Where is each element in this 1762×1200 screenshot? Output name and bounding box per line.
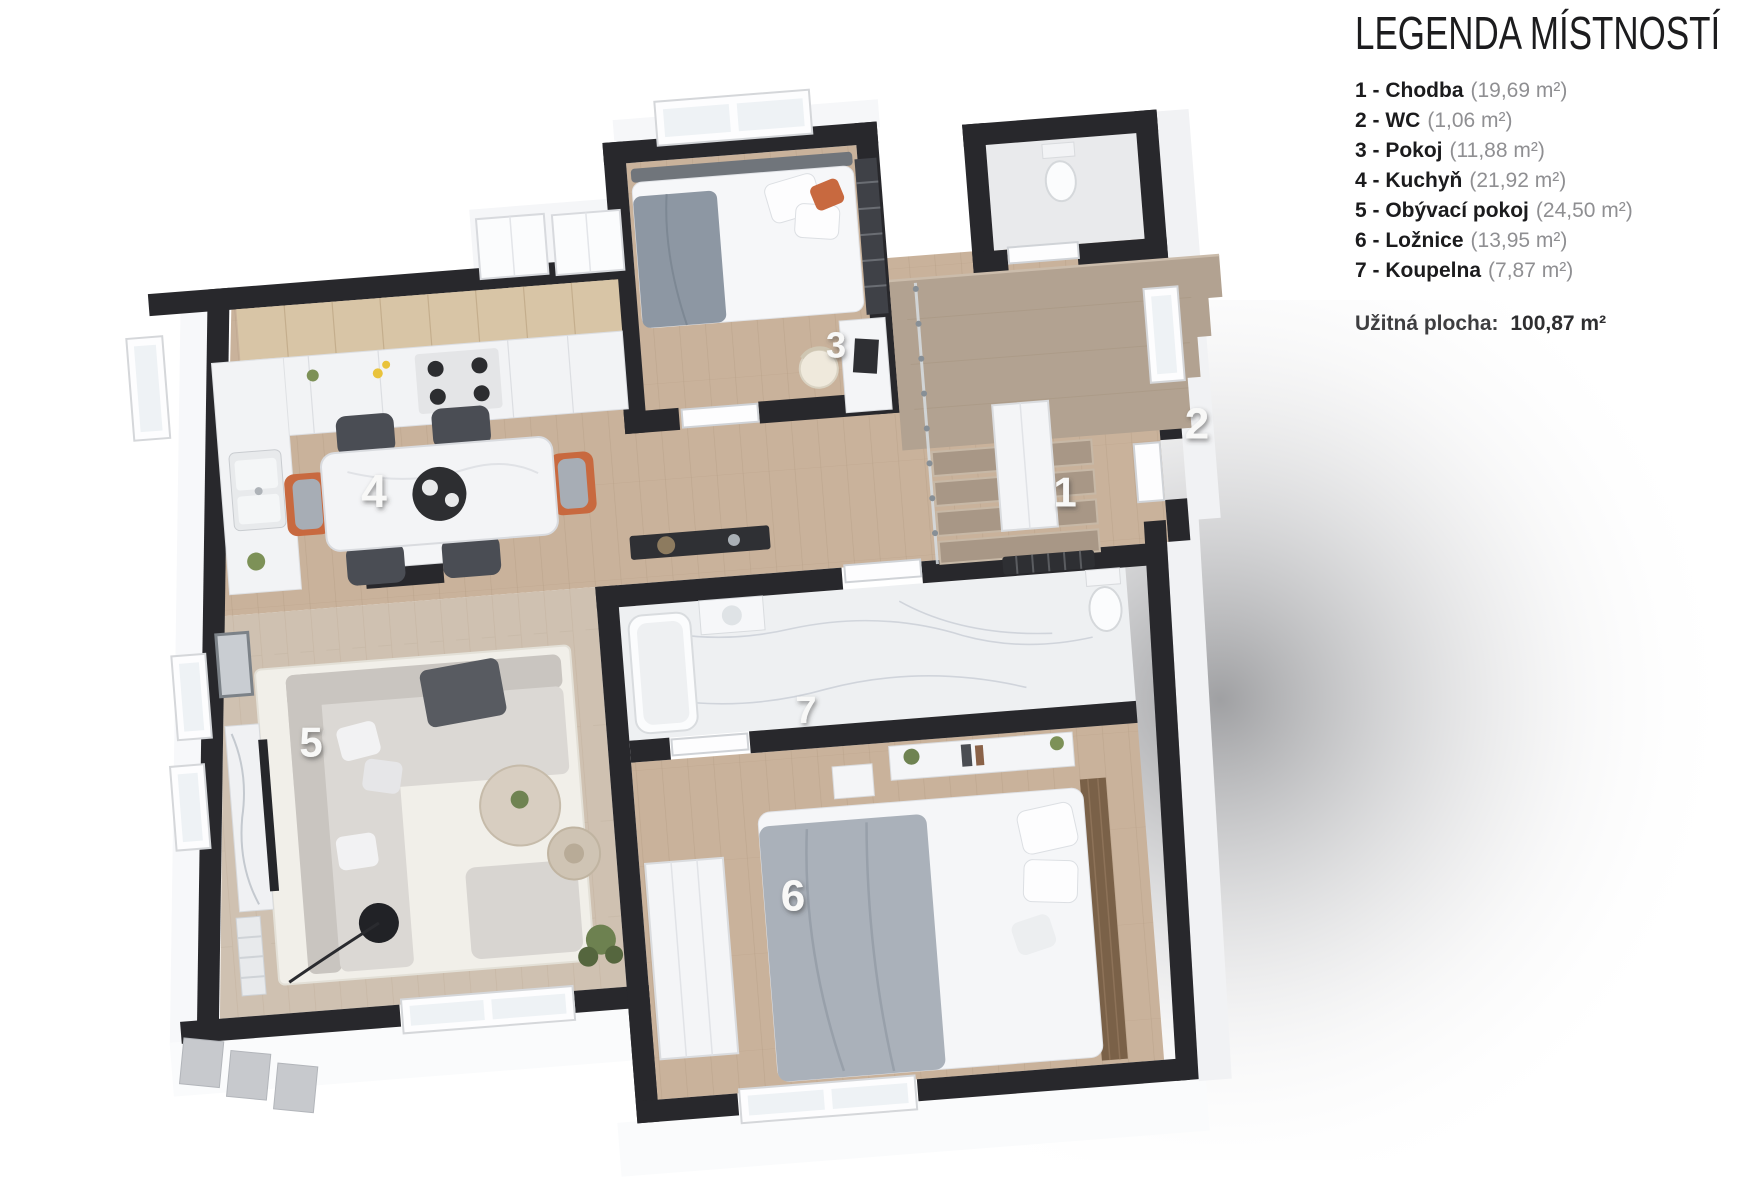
legend-item: 5 - Obývací pokoj(24,50 m²) bbox=[1355, 196, 1755, 226]
legend-item: 2 - WC(1,06 m²) bbox=[1355, 106, 1755, 136]
blanket bbox=[633, 190, 727, 328]
nightstand bbox=[832, 764, 874, 799]
toilet-tank bbox=[1085, 568, 1120, 587]
bedroom-wardrobe bbox=[645, 858, 738, 1060]
room-number-3: 3 bbox=[826, 325, 846, 366]
usable-area-value: 100,87 m² bbox=[1510, 312, 1606, 335]
room-number-4: 4 bbox=[361, 465, 387, 517]
blanket-gray bbox=[759, 814, 947, 1082]
legend-item: 4 - Kuchyň(21,92 m²) bbox=[1355, 166, 1755, 196]
room-number-1: 1 bbox=[1053, 469, 1076, 516]
legend-item: 6 - Ložnice(13,95 m²) bbox=[1355, 226, 1755, 256]
room-number-6: 6 bbox=[781, 872, 805, 921]
stove bbox=[414, 348, 502, 414]
laptop bbox=[853, 338, 879, 373]
legend-item: 7 - Koupelna(7,87 m²) bbox=[1355, 256, 1755, 286]
room-number-2: 2 bbox=[1185, 400, 1209, 449]
legend-items: 1 - Chodba(19,69 m²)2 - WC(1,06 m²)3 - P… bbox=[1355, 76, 1755, 286]
legend-title: LEGENDA MÍSTNOSTÍ bbox=[1355, 6, 1659, 60]
usable-area: Užitná plocha: 100,87 m² bbox=[1355, 312, 1755, 336]
wall-art bbox=[216, 632, 253, 696]
room-number-7: 7 bbox=[795, 690, 816, 732]
room-number-5: 5 bbox=[299, 719, 322, 766]
door-entry bbox=[1134, 442, 1164, 502]
page-root: 1.NP bbox=[0, 0, 1762, 1200]
room-legend: LEGENDA MÍSTNOSTÍ 1 - Chodba(19,69 m²)2 … bbox=[1355, 6, 1755, 336]
legend-item: 3 - Pokoj(11,88 m²) bbox=[1355, 136, 1755, 166]
legend-item: 1 - Chodba(19,69 m²) bbox=[1355, 76, 1755, 106]
usable-area-label: Užitná plocha: bbox=[1355, 312, 1499, 335]
